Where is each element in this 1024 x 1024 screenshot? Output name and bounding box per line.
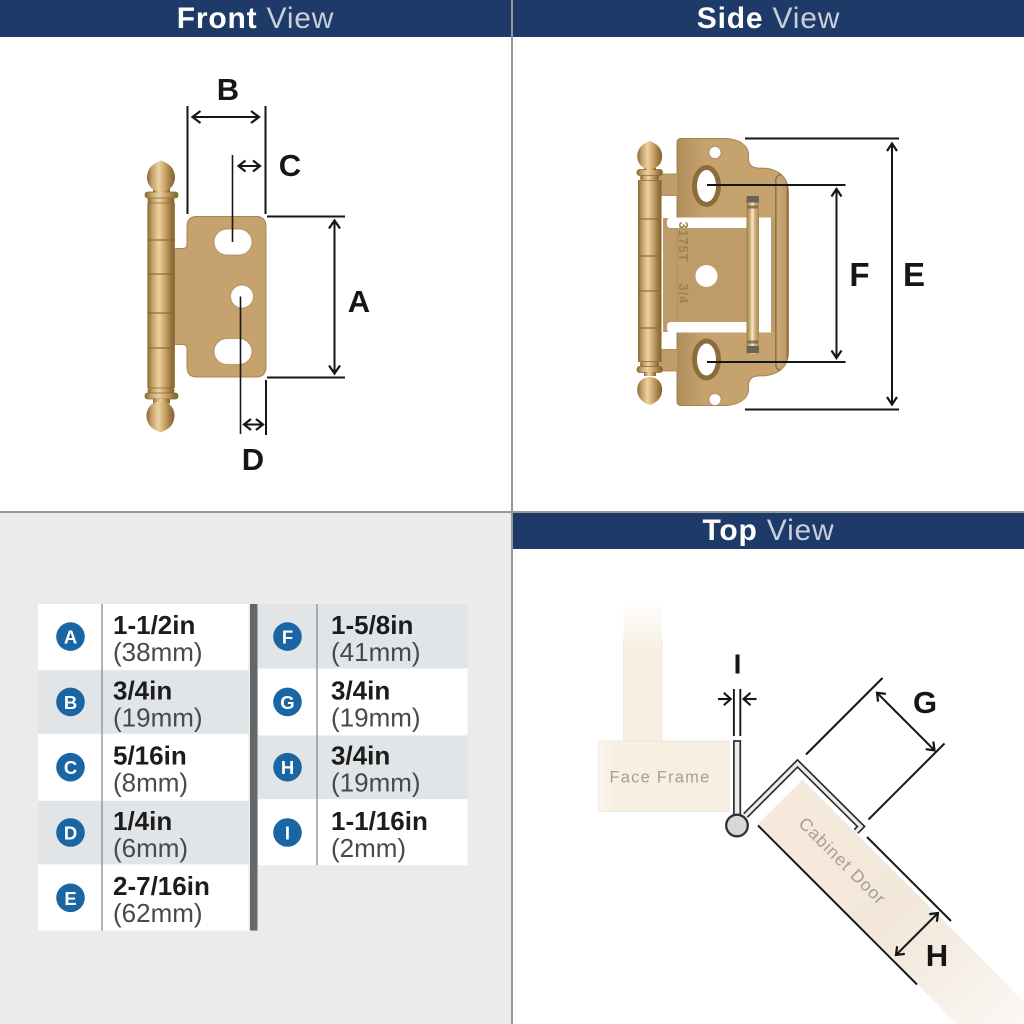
svg-text:F: F bbox=[849, 256, 869, 293]
svg-text:(41mm): (41mm) bbox=[331, 637, 421, 667]
svg-text:E: E bbox=[64, 888, 76, 909]
svg-text:3/4in: 3/4in bbox=[331, 741, 390, 771]
svg-text:B: B bbox=[217, 72, 239, 107]
svg-text:I: I bbox=[734, 649, 742, 680]
svg-text:Face Frame: Face Frame bbox=[610, 769, 711, 787]
svg-text:3/4in: 3/4in bbox=[113, 675, 172, 705]
svg-text:3175T: 3175T bbox=[676, 222, 690, 262]
svg-text:B: B bbox=[64, 692, 77, 713]
svg-text:1-1/2in: 1-1/2in bbox=[113, 610, 195, 640]
svg-text:C: C bbox=[64, 757, 77, 778]
svg-text:F: F bbox=[282, 627, 293, 648]
svg-text:(2mm): (2mm) bbox=[331, 833, 406, 863]
svg-text:2-7/16in: 2-7/16in bbox=[113, 871, 210, 901]
svg-text:A: A bbox=[64, 627, 77, 648]
svg-text:5/16in: 5/16in bbox=[113, 741, 187, 771]
svg-text:H: H bbox=[926, 938, 948, 973]
svg-text:H: H bbox=[281, 757, 294, 778]
svg-text:E: E bbox=[903, 256, 925, 293]
svg-text:C: C bbox=[279, 148, 301, 183]
svg-text:(62mm): (62mm) bbox=[113, 898, 203, 928]
svg-text:(19mm): (19mm) bbox=[331, 768, 421, 798]
svg-text:G: G bbox=[280, 692, 294, 713]
svg-text:G: G bbox=[913, 685, 937, 720]
svg-text:3/4in: 3/4in bbox=[331, 675, 390, 705]
svg-text:1/4in: 1/4in bbox=[113, 806, 172, 836]
svg-text:1-5/8in: 1-5/8in bbox=[331, 610, 413, 640]
svg-text:(8mm): (8mm) bbox=[113, 768, 188, 798]
svg-text:1-1/16in: 1-1/16in bbox=[331, 806, 428, 836]
svg-text:(19mm): (19mm) bbox=[113, 702, 203, 732]
svg-text:D: D bbox=[242, 442, 264, 477]
svg-text:(6mm): (6mm) bbox=[113, 833, 188, 863]
svg-text:D: D bbox=[64, 823, 77, 844]
svg-text:A: A bbox=[348, 284, 370, 319]
svg-text:I: I bbox=[285, 823, 290, 844]
svg-text:3/4: 3/4 bbox=[676, 284, 690, 304]
svg-text:(38mm): (38mm) bbox=[113, 637, 203, 667]
svg-text:(19mm): (19mm) bbox=[331, 702, 421, 732]
